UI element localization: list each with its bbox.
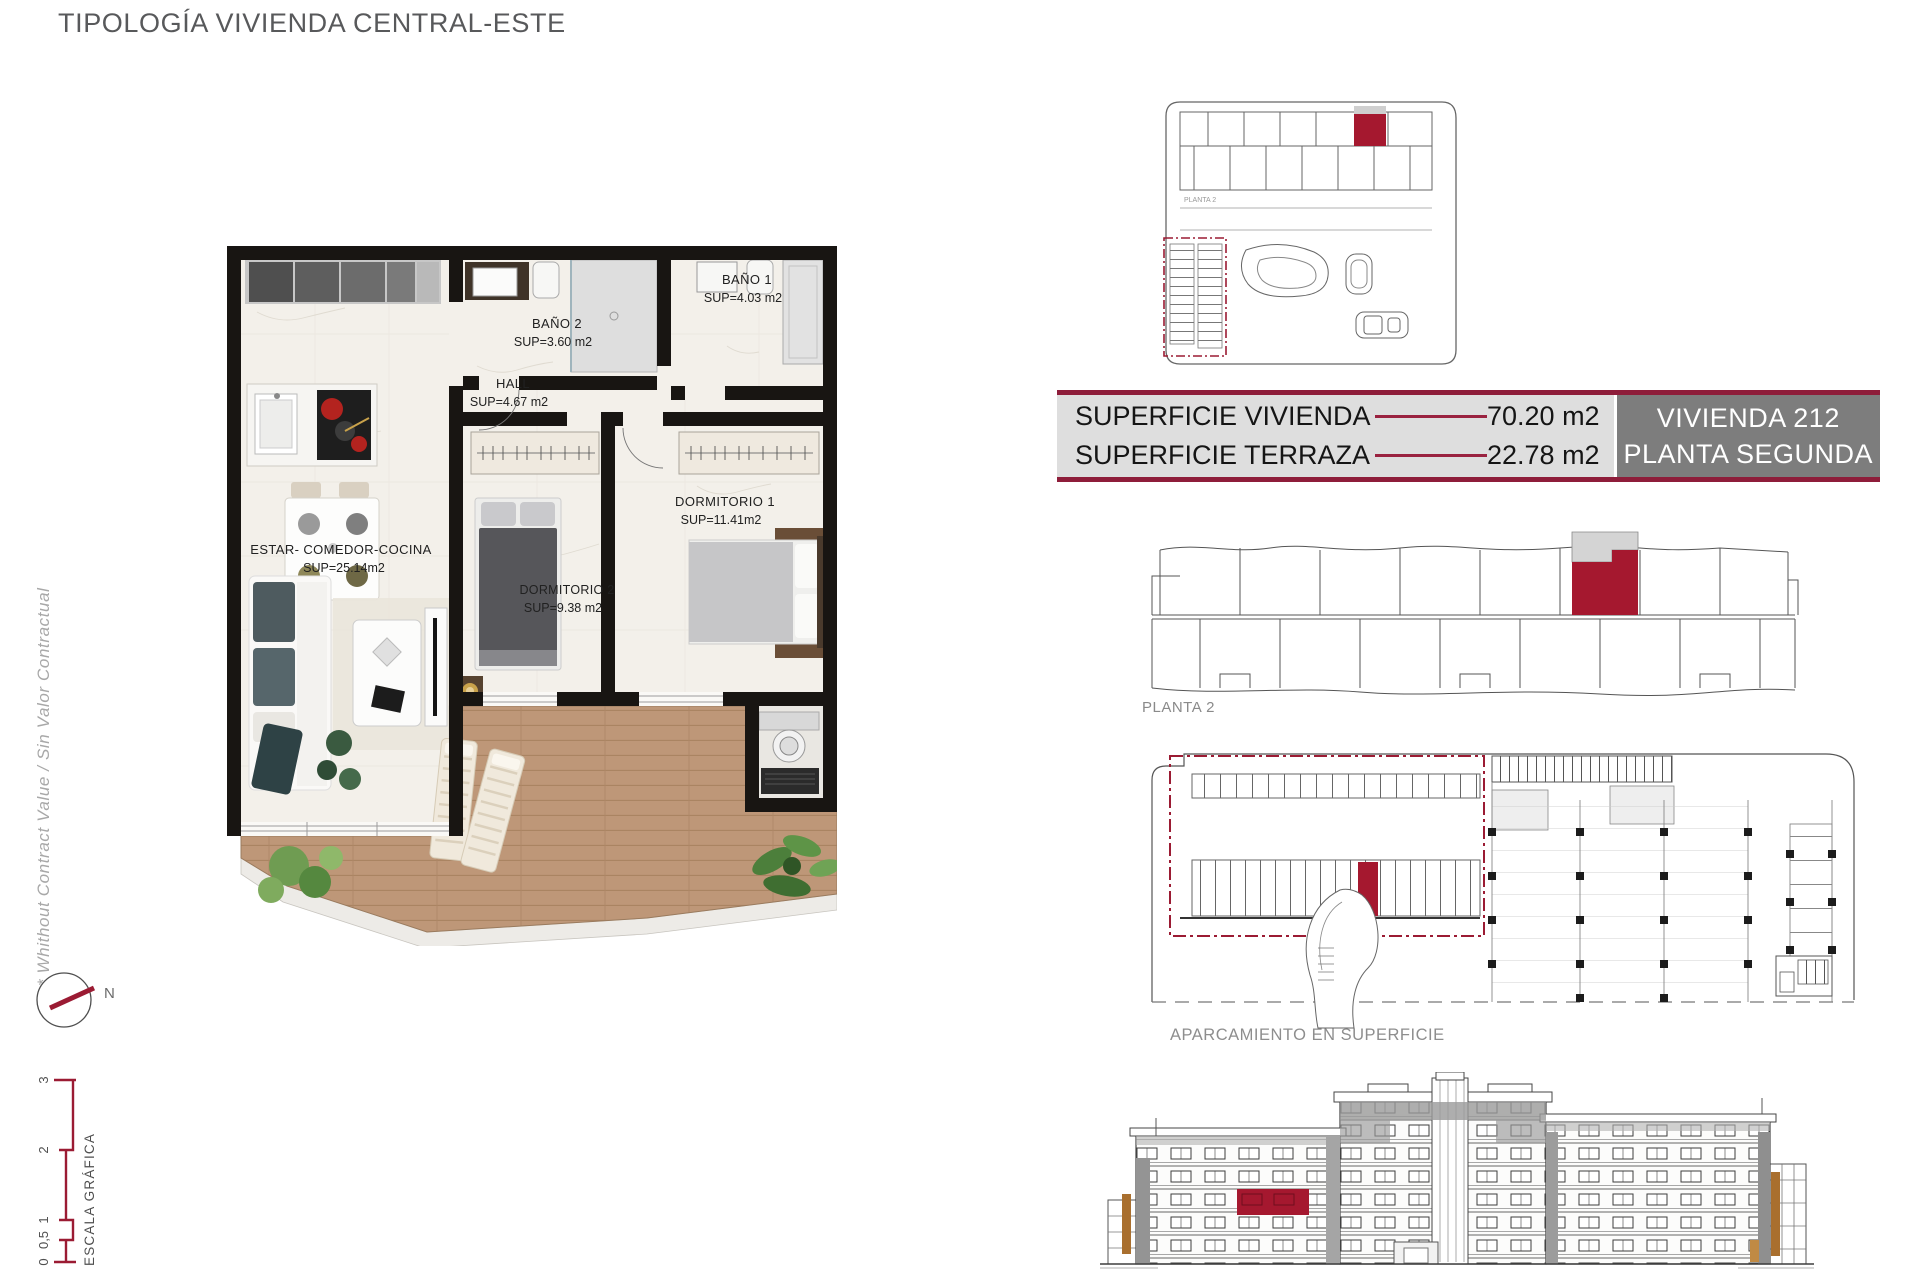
surface-label: SUPERFICIE TERRAZA [1075,440,1375,471]
unit-floor: PLANTA SEGUNDA [1624,436,1874,472]
room-label: BAÑO 1 [722,272,772,287]
room-area: SUP=9.38 m2 [524,601,602,615]
scale-tick: 0,5 [36,1231,51,1249]
surface-value: 70.20 m2 [1487,401,1614,432]
surface-info-panel: SUPERFICIE VIVIENDA 70.20 m2 SUPERFICIE … [1057,390,1880,482]
scale-tick: 1 [36,1216,51,1223]
unit-id-box: VIVIENDA 212 PLANTA SEGUNDA [1614,395,1880,477]
room-label: DORMITORIO 1 [675,494,775,509]
north-label: N [104,985,115,1002]
roof-patch [1354,106,1386,114]
room-area: SUP=3.60 m2 [514,335,592,349]
surface-label: SUPERFICIE VIVIENDA [1075,401,1375,432]
disclaimer-text: * Whithout Contract Value / Sin Valor Co… [34,556,54,986]
sculptural-feature [1306,889,1378,1028]
connector-line [1375,415,1487,418]
scale-title: ESCALA GRÁFICA [82,1133,97,1266]
scale-tick: 3 [36,1076,51,1083]
facade-blocks [1108,1072,1806,1264]
room-area: SUP=4.67 m2 [470,395,548,409]
stall-row-top [1192,774,1480,798]
garage-grid [1492,804,1748,1002]
room-area: SUP=25.14m2 [303,561,385,575]
apartment-floor-plan: BAÑO 2 SUP=3.60 m2 BAÑO 1 SUP=4.03 m2 HA… [227,246,837,946]
scale-tick: 0 [36,1258,51,1265]
highlighted-unit [1354,114,1386,146]
room-label: ESTAR- COMEDOR-COCINA [250,542,432,557]
table-row: SUPERFICIE VIVIENDA 70.20 m2 [1075,397,1614,436]
strip-label: PLANTA 2 [1142,699,1215,716]
strip-outline [1152,546,1798,695]
surface-value: 22.78 m2 [1487,440,1614,471]
stair-room [1776,956,1832,996]
site-plot-plan: PLANTA 2 [1150,88,1470,378]
graphic-scale-bar: 0 0,5 1 2 3 ESCALA GRÁFICA [36,1076,97,1266]
planta2-strip-plan: PLANTA 2 [1140,520,1800,720]
compass-and-scale: N 0 0,5 1 2 3 ESCALA GRÁFICA [26,970,156,1278]
stall-row-right-top [1492,756,1672,782]
highlighted-unit-elevation [1237,1189,1309,1215]
plot-floor-label: PLANTA 2 [1184,197,1216,204]
building-elevation [1098,1072,1818,1280]
room-area: SUP=4.03 m2 [704,291,782,305]
compass-icon: N [37,973,115,1027]
connector-line [1375,454,1487,457]
room-label: HALL [496,376,530,391]
parking-plan: APARCAMIENTO EN SUPERFICIE [1140,740,1870,1050]
bedroom1-furniture [679,432,825,658]
room-area: SUP=11.41m2 [681,513,762,527]
room-label: DORMITORIO 2 [519,583,614,597]
scale-tick: 2 [36,1146,51,1153]
page-title: TIPOLOGÍA VIVIENDA CENTRAL-ESTE [58,8,566,39]
room-label: BAÑO 2 [532,316,582,331]
laundry-area [759,706,823,798]
table-row: SUPERFICIE TERRAZA 22.78 m2 [1075,436,1614,475]
surface-table: SUPERFICIE VIVIENDA 70.20 m2 SUPERFICIE … [1057,395,1614,477]
parking-label: APARCAMIENTO EN SUPERFICIE [1170,1026,1445,1044]
unit-name: VIVIENDA 212 [1657,400,1840,436]
plan-sheet: TIPOLOGÍA VIVIENDA CENTRAL-ESTE * Whitho… [0,0,1920,1280]
